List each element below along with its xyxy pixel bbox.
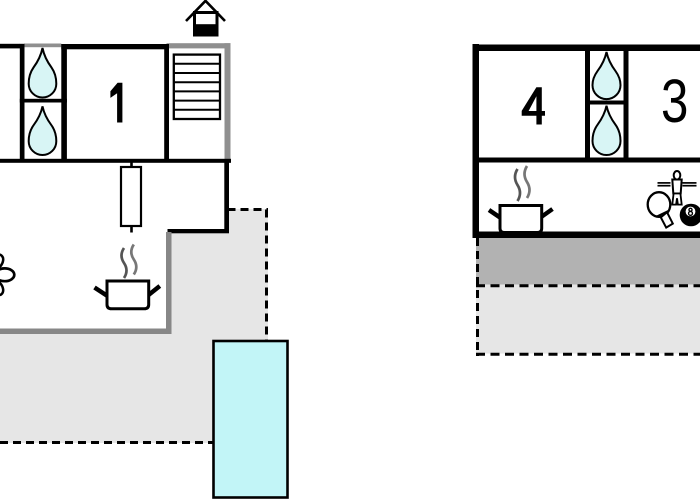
svg-text:3: 3 [661, 67, 688, 135]
